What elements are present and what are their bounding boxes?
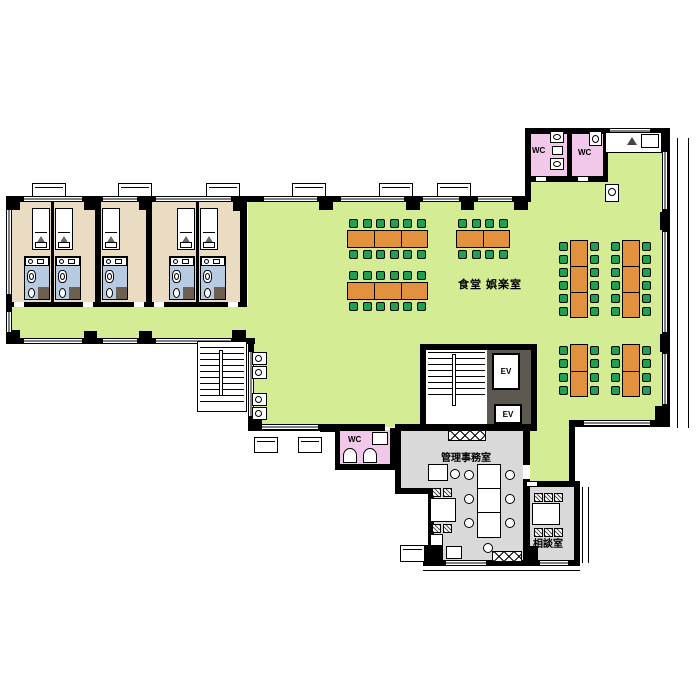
column bbox=[660, 334, 670, 352]
chair bbox=[559, 386, 568, 395]
window bbox=[7, 210, 11, 294]
chair bbox=[559, 268, 568, 277]
office-chair bbox=[483, 543, 493, 553]
door-gap bbox=[83, 302, 93, 307]
window bbox=[7, 312, 11, 332]
chair bbox=[642, 255, 651, 264]
chair bbox=[559, 373, 568, 382]
chair bbox=[642, 242, 651, 251]
chair bbox=[559, 307, 568, 316]
bathtub-icon bbox=[59, 288, 66, 298]
column bbox=[139, 331, 152, 344]
column bbox=[233, 197, 247, 211]
wall bbox=[574, 481, 580, 566]
door-gap bbox=[154, 302, 164, 307]
office-desk bbox=[428, 464, 448, 481]
chair bbox=[590, 386, 599, 395]
bay-window bbox=[400, 545, 425, 562]
window bbox=[262, 425, 318, 429]
table-segment-line bbox=[374, 283, 375, 299]
chair bbox=[499, 219, 508, 228]
chair bbox=[390, 302, 399, 311]
window bbox=[103, 197, 137, 201]
toilet-bowl-icon bbox=[553, 134, 561, 140]
wall bbox=[525, 128, 531, 202]
chair bbox=[376, 271, 385, 280]
column bbox=[660, 212, 670, 230]
wall bbox=[339, 424, 385, 431]
stair-steps bbox=[428, 352, 485, 400]
chair bbox=[390, 271, 399, 280]
dining-table bbox=[347, 282, 428, 300]
table-segment-line bbox=[374, 231, 375, 247]
chair bbox=[590, 373, 599, 382]
wall bbox=[146, 196, 152, 307]
shower-pan bbox=[38, 287, 49, 299]
consultation-table bbox=[532, 503, 560, 525]
door-gap bbox=[228, 302, 238, 307]
wall bbox=[395, 430, 401, 492]
chair bbox=[472, 250, 481, 259]
chair bbox=[485, 219, 494, 228]
column bbox=[655, 406, 670, 427]
bathtub-icon bbox=[28, 288, 35, 298]
chair bbox=[590, 281, 599, 290]
floor-plan: 食堂 娯楽室 管理事務室 相談室 WC WC WC EV EV bbox=[0, 0, 696, 696]
wall bbox=[6, 302, 247, 307]
chair bbox=[417, 302, 426, 311]
chair bbox=[349, 302, 358, 311]
office-chair bbox=[432, 488, 441, 497]
chair bbox=[403, 219, 412, 228]
chair bbox=[611, 373, 620, 382]
storage-box bbox=[446, 546, 462, 559]
fixture-icon bbox=[37, 259, 44, 264]
column bbox=[406, 197, 420, 210]
window bbox=[423, 197, 459, 201]
toilet-bowl-icon bbox=[60, 273, 65, 280]
office-chair bbox=[464, 470, 474, 480]
chair bbox=[403, 250, 412, 259]
window bbox=[446, 561, 486, 565]
chair bbox=[499, 250, 508, 259]
entry-mat bbox=[492, 551, 522, 562]
chair bbox=[363, 302, 372, 311]
chair bbox=[642, 346, 651, 355]
wall bbox=[420, 344, 426, 430]
chair bbox=[611, 281, 620, 290]
table-segment-line bbox=[623, 292, 639, 293]
bed-pillow bbox=[180, 242, 192, 248]
floor-plan-drawing bbox=[0, 0, 696, 696]
chair bbox=[590, 255, 599, 264]
shower-pan bbox=[183, 287, 194, 299]
chair bbox=[349, 219, 358, 228]
shower-pan bbox=[69, 287, 80, 299]
table-segment-line bbox=[571, 292, 587, 293]
chair bbox=[590, 242, 599, 251]
bathtub-icon bbox=[173, 288, 180, 298]
chair bbox=[642, 268, 651, 277]
fixture-icon bbox=[115, 259, 122, 264]
eave-line bbox=[423, 570, 580, 571]
chair bbox=[611, 268, 620, 277]
bay-window bbox=[254, 437, 278, 453]
bed-pillow bbox=[35, 242, 47, 248]
window bbox=[264, 197, 317, 201]
admin-office-label: 管理事務室 bbox=[441, 449, 491, 464]
toilet-bowl-icon bbox=[553, 161, 561, 167]
wall bbox=[531, 344, 537, 430]
bed-fold-line bbox=[35, 232, 47, 233]
sink-bowl-icon bbox=[59, 259, 64, 264]
shower-pan bbox=[214, 287, 225, 299]
column bbox=[7, 330, 20, 344]
bay-window-line bbox=[382, 187, 410, 188]
chair bbox=[417, 271, 426, 280]
bay-window bbox=[118, 183, 152, 197]
bay-window bbox=[298, 437, 322, 453]
wall bbox=[51, 200, 54, 303]
dining-table bbox=[347, 230, 428, 248]
bay-window bbox=[32, 183, 66, 197]
column bbox=[425, 545, 443, 562]
table-segment-line bbox=[478, 488, 500, 489]
bay-window-line bbox=[295, 187, 323, 188]
table-segment-line bbox=[483, 231, 484, 247]
chair bbox=[403, 302, 412, 311]
chair bbox=[642, 386, 651, 395]
door-gap bbox=[134, 302, 144, 307]
window bbox=[478, 197, 512, 201]
wall bbox=[240, 196, 247, 307]
office-chair bbox=[464, 518, 474, 528]
door-gap bbox=[14, 302, 24, 307]
column bbox=[461, 197, 474, 210]
bay-window bbox=[292, 183, 326, 197]
toilet-bowl-icon bbox=[107, 273, 112, 280]
bed-fold-line bbox=[180, 232, 192, 233]
stair-rail bbox=[452, 354, 456, 406]
consultation-chair bbox=[534, 493, 543, 502]
entry-mat bbox=[448, 430, 486, 441]
chair bbox=[485, 250, 494, 259]
chair bbox=[417, 219, 426, 228]
chair bbox=[611, 294, 620, 303]
bed-fold-line bbox=[203, 232, 215, 233]
door-gap bbox=[523, 465, 530, 479]
fixture-icon bbox=[68, 259, 75, 264]
chair bbox=[559, 242, 568, 251]
chair bbox=[363, 250, 372, 259]
chair bbox=[642, 294, 651, 303]
bed-fold-line bbox=[58, 232, 70, 233]
window bbox=[584, 421, 650, 425]
table-segment-line bbox=[478, 512, 500, 513]
table-segment-line bbox=[571, 266, 587, 267]
door-gap bbox=[527, 482, 537, 486]
table-segment-line bbox=[571, 371, 587, 372]
bed-fold-line bbox=[105, 232, 117, 233]
bay-window-line bbox=[209, 187, 237, 188]
bed-pillow bbox=[105, 242, 117, 248]
wash-basin-bowl-icon bbox=[255, 396, 262, 403]
window bbox=[24, 197, 82, 201]
consultation-chair bbox=[554, 493, 563, 502]
wall bbox=[569, 420, 575, 487]
chair bbox=[642, 281, 651, 290]
fountain-bowl-icon bbox=[608, 188, 616, 196]
wall bbox=[567, 128, 572, 182]
wc-label-2: WC bbox=[578, 148, 591, 157]
bay-window bbox=[437, 183, 471, 197]
chair bbox=[611, 386, 620, 395]
chair bbox=[642, 373, 651, 382]
wall bbox=[390, 428, 395, 470]
chair bbox=[458, 250, 467, 259]
bay-window bbox=[206, 183, 240, 197]
wall bbox=[420, 344, 537, 350]
table-segment-line bbox=[401, 231, 402, 247]
chair bbox=[458, 219, 467, 228]
bay-window bbox=[379, 183, 413, 197]
window bbox=[540, 561, 568, 565]
office-chair bbox=[432, 524, 441, 533]
table-segment-line bbox=[623, 371, 639, 372]
table-segment-line bbox=[401, 283, 402, 299]
kitchen-sink bbox=[641, 134, 659, 148]
column bbox=[320, 424, 336, 432]
window bbox=[103, 339, 137, 343]
window bbox=[663, 152, 667, 209]
column bbox=[84, 331, 97, 344]
column bbox=[7, 197, 20, 210]
wash-basin-bowl-icon bbox=[255, 410, 262, 417]
chair bbox=[611, 242, 620, 251]
eave-line bbox=[582, 487, 589, 563]
chair bbox=[590, 294, 599, 303]
chair bbox=[559, 281, 568, 290]
chair bbox=[390, 250, 399, 259]
recycle-triangle-icon bbox=[627, 136, 637, 145]
chair bbox=[611, 307, 620, 316]
office-chair bbox=[443, 488, 452, 497]
chair bbox=[349, 271, 358, 280]
chair bbox=[403, 271, 412, 280]
chair bbox=[611, 346, 620, 355]
chair bbox=[590, 346, 599, 355]
corridor-floor bbox=[10, 305, 250, 338]
bay-window-line bbox=[440, 187, 468, 188]
column bbox=[319, 197, 333, 210]
bed-pillow bbox=[58, 242, 70, 248]
wash-basin-bowl-icon bbox=[255, 355, 262, 362]
elevator-2: EV bbox=[494, 404, 522, 424]
door-gap bbox=[536, 177, 546, 181]
wc-label-1: WC bbox=[532, 146, 545, 155]
wash-basin-bowl-icon bbox=[255, 369, 262, 376]
chair bbox=[349, 250, 358, 259]
shower-pan bbox=[116, 287, 127, 299]
wc-label-3: WC bbox=[348, 435, 361, 444]
toilet-bowl-icon bbox=[174, 273, 179, 280]
window bbox=[341, 197, 404, 201]
column bbox=[514, 197, 528, 210]
chair bbox=[590, 359, 599, 368]
sink-bowl-icon bbox=[204, 259, 209, 264]
window bbox=[24, 339, 82, 343]
bathtub-icon bbox=[106, 288, 113, 298]
chair bbox=[363, 219, 372, 228]
chair bbox=[376, 250, 385, 259]
bed-pillow bbox=[203, 242, 215, 248]
window bbox=[663, 354, 667, 404]
chair bbox=[559, 346, 568, 355]
window bbox=[663, 232, 667, 332]
bay-window-line bbox=[301, 441, 319, 442]
chair bbox=[363, 271, 372, 280]
office-chair bbox=[450, 469, 460, 479]
chair bbox=[590, 307, 599, 316]
bathtub-icon bbox=[204, 288, 211, 298]
wc-sink bbox=[552, 146, 563, 155]
chair bbox=[390, 219, 399, 228]
fixture-icon bbox=[213, 259, 220, 264]
fixture-icon bbox=[182, 259, 189, 264]
toilet-bowl-icon bbox=[592, 135, 599, 143]
storage-box bbox=[430, 534, 443, 546]
chair bbox=[590, 268, 599, 277]
sink-bowl-icon bbox=[28, 259, 33, 264]
door-gap bbox=[578, 177, 588, 181]
table-segment-line bbox=[623, 266, 639, 267]
sink-bowl-icon bbox=[106, 259, 111, 264]
eave-line bbox=[677, 138, 689, 428]
chair bbox=[376, 219, 385, 228]
dining-table bbox=[570, 240, 588, 318]
toilet-bowl-icon bbox=[29, 273, 34, 280]
chair bbox=[611, 359, 620, 368]
stair-rail bbox=[219, 350, 223, 396]
chair bbox=[559, 359, 568, 368]
wc-sink bbox=[372, 432, 388, 445]
consultation-room-label: 相談室 bbox=[533, 535, 563, 550]
sink-bowl-icon bbox=[173, 259, 178, 264]
chair bbox=[417, 250, 426, 259]
office-chair bbox=[464, 494, 474, 504]
bay-window-line bbox=[403, 549, 422, 550]
column bbox=[139, 197, 152, 210]
chair bbox=[472, 219, 481, 228]
dining-recreation-room-label: 食堂 娯楽室 bbox=[458, 276, 522, 292]
dining-table bbox=[622, 240, 640, 318]
chair bbox=[642, 359, 651, 368]
wall bbox=[395, 424, 426, 431]
window bbox=[156, 197, 231, 201]
chair bbox=[376, 302, 385, 311]
chair bbox=[559, 255, 568, 264]
wc-stall-arch bbox=[363, 448, 377, 463]
bay-window-line bbox=[35, 187, 63, 188]
wc-stall-arch bbox=[343, 448, 357, 463]
elevator-1: EV bbox=[492, 353, 520, 390]
office-chair bbox=[505, 518, 515, 528]
chair bbox=[611, 255, 620, 264]
office-desk bbox=[430, 498, 456, 522]
wall bbox=[95, 196, 101, 307]
office-chair bbox=[505, 494, 515, 504]
bay-window-line bbox=[121, 187, 149, 188]
wall bbox=[196, 200, 199, 303]
chair bbox=[559, 294, 568, 303]
column bbox=[84, 197, 97, 210]
toilet-bowl-icon bbox=[205, 273, 210, 280]
chair bbox=[642, 307, 651, 316]
meeting-table bbox=[477, 464, 501, 538]
bay-window-line bbox=[257, 441, 275, 442]
office-chair bbox=[443, 524, 452, 533]
consultation-chair bbox=[544, 493, 553, 502]
office-chair bbox=[505, 470, 515, 480]
